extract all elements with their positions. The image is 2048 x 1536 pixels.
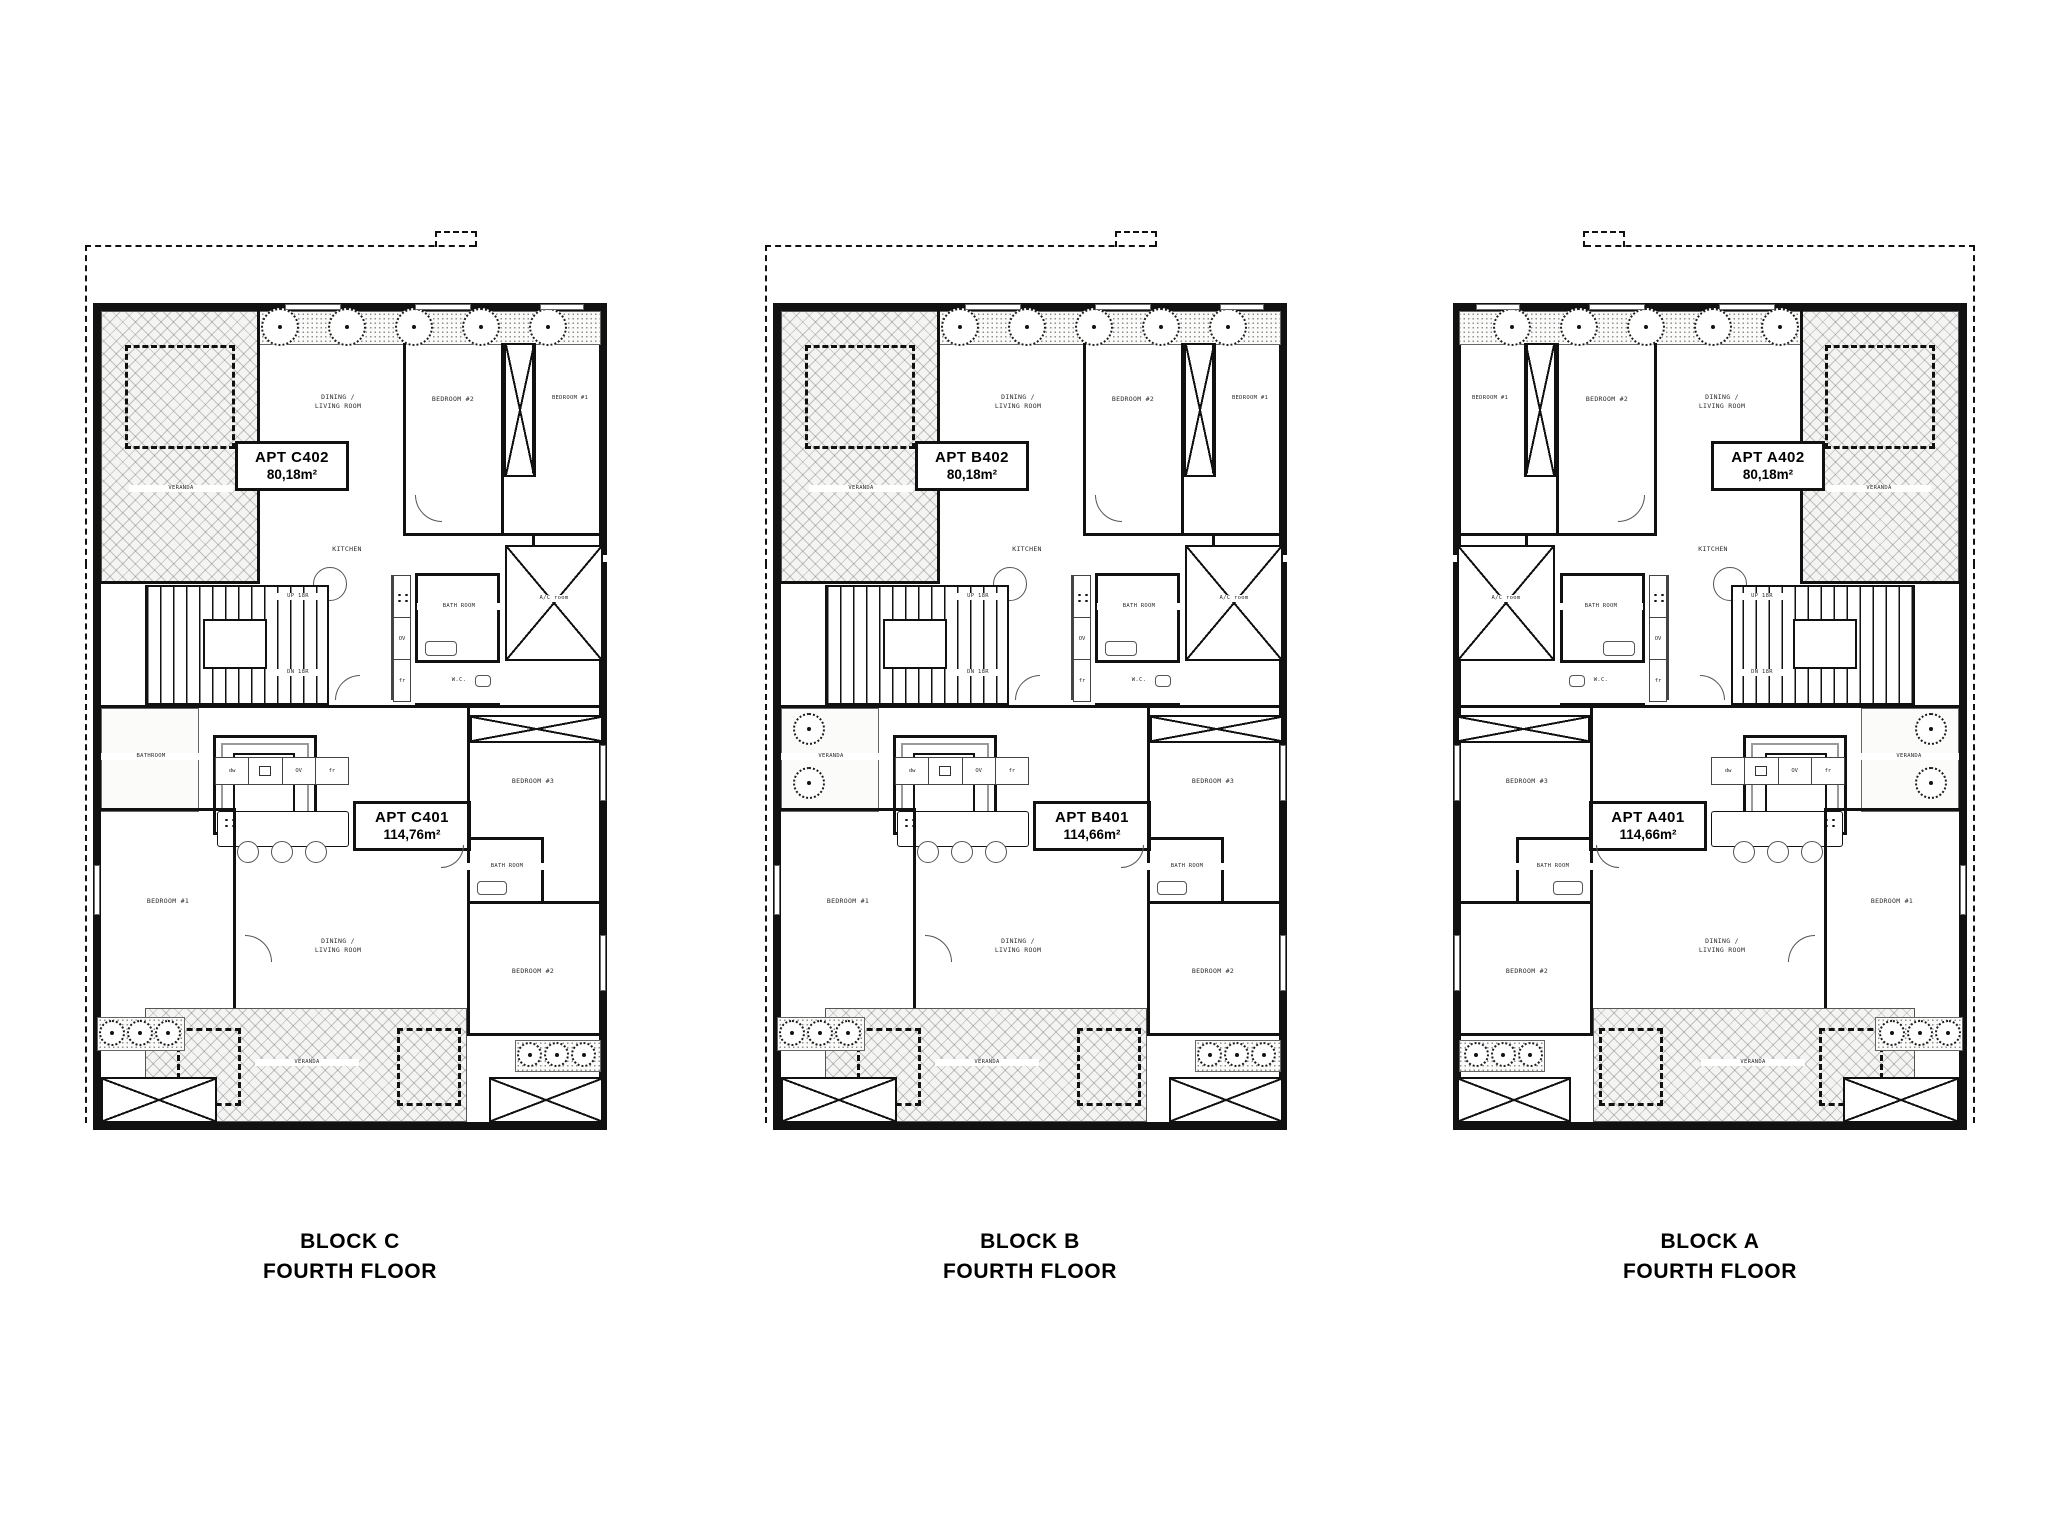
ac-shaft-label: A/C room — [1464, 595, 1548, 602]
dishwasher-cell: dw — [896, 758, 928, 784]
stair-down-label: DN 18R — [1735, 669, 1789, 676]
room-label-dining-upper-1: DINING / — [1667, 393, 1777, 401]
room-label-dining-upper-2: LIVING ROOM — [283, 402, 393, 410]
room-label-bedroom3: BEDROOM #3 — [1477, 777, 1577, 785]
wall-bedroom2-lower-top — [467, 901, 599, 904]
door-arc — [1596, 845, 1619, 868]
wall-bath-lower-top — [1147, 837, 1223, 840]
window-marker — [1280, 935, 1286, 991]
door-arc — [245, 935, 272, 962]
stair-down-label: DN 18R — [271, 669, 325, 676]
apt-lower-name: APT C401 — [362, 809, 462, 827]
wall-bedroom2-lower-bottom — [1453, 1033, 1593, 1036]
pergola-outline — [805, 345, 915, 449]
door-arc — [1015, 675, 1040, 700]
mid-left-label: VERANDA — [1859, 753, 1959, 760]
room-label-veranda-lower: VERANDA — [255, 1059, 359, 1066]
dishwasher-cell: dw — [1712, 758, 1744, 784]
door-arc — [1121, 845, 1144, 868]
window-marker — [1960, 865, 1966, 915]
wall-bath-lower-top — [1517, 837, 1593, 840]
window-marker — [1095, 304, 1151, 310]
apt-lower-area: 114,66m² — [1042, 827, 1142, 844]
door-arc — [441, 845, 464, 868]
outer-wall-bottom — [773, 1122, 1287, 1130]
room-label-bath-lower: BATH ROOM — [1147, 863, 1227, 870]
boundary-outline-tab — [435, 231, 477, 247]
wall-bedroom1-right — [1824, 808, 1827, 1010]
room-label-dining-lower-1: DINING / — [1667, 937, 1777, 945]
stair-landing — [203, 619, 267, 669]
room-label-dining-upper-1: DINING / — [283, 393, 393, 401]
room-label-dining-upper-2: LIVING ROOM — [963, 402, 1073, 410]
tree-icon — [1518, 1042, 1543, 1067]
cooktop-cell — [1074, 576, 1090, 617]
cabinet-row: dw OV fr — [215, 757, 349, 785]
stair-up-label: UP 18R — [271, 593, 325, 600]
ac-shaft — [1185, 545, 1283, 661]
tree-icon — [127, 1020, 153, 1046]
wardrobe-bedroom3 — [1150, 715, 1283, 743]
cooktop-cell — [1650, 576, 1666, 617]
tree-icon — [395, 308, 433, 346]
wall-veranda-bottom — [93, 581, 260, 584]
door-arc — [1700, 675, 1725, 700]
sink-cell — [928, 758, 961, 784]
tree-icon — [462, 308, 500, 346]
caption-floor-name: FOURTH FLOOR — [85, 1257, 615, 1287]
room-label-bath-lower: BATH ROOM — [467, 863, 547, 870]
tree-icon — [835, 1020, 861, 1046]
outer-wall-bottom — [93, 1122, 607, 1130]
kitchen-counter-cells: OV fr — [1649, 575, 1667, 702]
apt-lower-name: APT A401 — [1598, 809, 1698, 827]
dishwasher-cell: dw — [216, 758, 248, 784]
oven-cell-lower: OV — [1778, 758, 1811, 784]
stair-landing — [883, 619, 947, 669]
caption-floor-name: FOURTH FLOOR — [765, 1257, 1295, 1287]
room-label-kitchen-upper: KITCHEN — [977, 545, 1077, 553]
cooktop-icon — [396, 592, 408, 602]
window-marker — [1280, 745, 1286, 801]
block-caption: BLOCK A FOURTH FLOOR — [1445, 1227, 1975, 1288]
wall-bath-upper-top — [415, 573, 500, 576]
mid-left-label: BATHROOM — [101, 753, 201, 760]
tree-icon — [1907, 1020, 1933, 1046]
apt-upper-label-box: APT C402 80,18m² — [235, 441, 349, 491]
bathtub-icon — [425, 641, 457, 656]
wall-bath-upper-left — [1642, 573, 1645, 663]
boundary-outline-tab — [1115, 231, 1157, 247]
tree-icon — [529, 308, 567, 346]
room-label-dining-lower-2: LIVING ROOM — [1667, 946, 1777, 954]
tree-icon — [1761, 308, 1799, 346]
wall-veranda-bottom — [1800, 581, 1967, 584]
pergola-outline — [125, 345, 235, 449]
apt-upper-label-box: APT A402 80,18m² — [1711, 441, 1825, 491]
room-label-veranda-upper: VERANDA — [809, 485, 913, 492]
sink-cell — [248, 758, 281, 784]
stool-icon — [237, 841, 259, 863]
tree-icon — [807, 1020, 833, 1046]
window-marker — [285, 304, 341, 310]
pergola-outline — [1599, 1028, 1663, 1106]
apt-upper-area: 80,18m² — [1720, 467, 1816, 484]
room-label-bedroom1-upper: BEDROOM #1 — [1445, 395, 1535, 402]
wall-right-rooms — [467, 708, 470, 1035]
fridge-cell: fr — [1074, 659, 1090, 701]
stair-down-label: DN 18R — [951, 669, 1005, 676]
sink-cell — [1744, 758, 1777, 784]
cooktop-cell — [394, 576, 410, 617]
boundary-outline-left — [765, 563, 769, 1123]
tree-icon — [1464, 1042, 1489, 1067]
floorplan-drawing: VERANDA DINING / LIVING ROOM BEDROOM #2 … — [85, 245, 615, 1135]
wall-bedrooms-bottom — [1083, 533, 1287, 536]
toilet-icon — [475, 675, 491, 687]
room-label-veranda-lower: VERANDA — [935, 1059, 1039, 1066]
caption-floor-name: FOURTH FLOOR — [1445, 1257, 1975, 1287]
room-label-kitchen-upper: KITCHEN — [297, 545, 397, 553]
room-label-dining-lower-1: DINING / — [963, 937, 1073, 945]
tree-icon — [261, 308, 299, 346]
window-marker — [774, 865, 780, 915]
room-label-bedroom2-lower: BEDROOM #2 — [1477, 967, 1577, 975]
wall-bath-upper-bottom — [1560, 660, 1645, 663]
wall-bedroom1-right — [233, 808, 236, 1010]
apt-lower-area: 114,66m² — [1598, 827, 1698, 844]
stool-icon — [1801, 841, 1823, 863]
oven-cell: OV — [1650, 617, 1666, 659]
tree-icon — [779, 1020, 805, 1046]
wall-bath-upper-top — [1560, 573, 1645, 576]
wall-bath-upper-right — [497, 573, 500, 663]
tree-icon — [1491, 1042, 1516, 1067]
wardrobe-bedroom3 — [470, 715, 603, 743]
toilet-icon — [1569, 675, 1585, 687]
apt-upper-name: APT B402 — [924, 449, 1020, 467]
wall-bedroom2-lower-bottom — [1147, 1033, 1287, 1036]
window-marker — [415, 304, 471, 310]
room-label-bedroom1-lower: BEDROOM #1 — [798, 897, 898, 905]
tree-icon — [1142, 308, 1180, 346]
caption-block-name: BLOCK B — [765, 1227, 1295, 1257]
tree-icon — [1560, 308, 1598, 346]
window-marker — [1454, 745, 1460, 801]
tree-icon — [1075, 308, 1113, 346]
outer-wall-left — [93, 303, 101, 1130]
tree-icon — [1627, 308, 1665, 346]
wall-bedroom2-lower-top — [1147, 901, 1279, 904]
wall-wardrobe-right — [532, 343, 535, 473]
wall-bath-lower-top — [467, 837, 543, 840]
mid-left-label: VERANDA — [781, 753, 881, 760]
tree-icon — [571, 1042, 596, 1067]
wall-bath-upper-bottom — [415, 660, 500, 663]
fridge-cell-lower: fr — [1811, 758, 1844, 784]
wall-dining-bedroom2 — [403, 343, 406, 535]
pergola-outline — [1077, 1028, 1141, 1106]
room-label-bedroom2-upper: BEDROOM #2 — [1559, 395, 1655, 403]
wall-bath-upper-top — [1095, 573, 1180, 576]
tree-icon — [1935, 1020, 1961, 1046]
apt-lower-label-box: APT A401 114,66m² — [1589, 801, 1707, 851]
room-label-bedroom1-lower: BEDROOM #1 — [1842, 897, 1942, 905]
room-label-bedroom2-upper: BEDROOM #2 — [405, 395, 501, 403]
oven-cell: OV — [1074, 617, 1090, 659]
ac-shaft-label: A/C room — [1192, 595, 1276, 602]
wall-bedrooms-bottom — [403, 533, 607, 536]
stool-icon — [951, 841, 973, 863]
wall-bedroom1-top — [781, 808, 916, 811]
room-label-veranda-lower: VERANDA — [1701, 1059, 1805, 1066]
stool-icon — [1733, 841, 1755, 863]
room-label-bedroom1-upper: BEDROOM #1 — [1205, 395, 1295, 402]
caption-block-name: BLOCK A — [1445, 1227, 1975, 1257]
outer-wall-bottom — [1453, 1122, 1967, 1130]
boundary-outline-tab — [1583, 231, 1625, 247]
wall-bedroom2-lower-top — [1461, 901, 1593, 904]
floorplan-drawing: VERANDA DINING / LIVING ROOM BEDROOM #2 … — [1445, 245, 1975, 1135]
apt-upper-label-box: APT B402 80,18m² — [915, 441, 1029, 491]
room-label-bedroom3: BEDROOM #3 — [1163, 777, 1263, 785]
stair-landing — [1793, 619, 1857, 669]
bathtub-icon — [1603, 641, 1635, 656]
floorplan-drawing: VERANDA DINING / LIVING ROOM BEDROOM #2 … — [765, 245, 1295, 1135]
wall-wardrobe-right — [1212, 343, 1215, 473]
stool-icon — [1767, 841, 1789, 863]
room-label-dining-upper-1: DINING / — [963, 393, 1073, 401]
wall-veranda-bottom — [773, 581, 940, 584]
fridge-cell: fr — [394, 659, 410, 701]
wall-right-rooms — [1147, 708, 1150, 1035]
apt-upper-area: 80,18m² — [924, 467, 1020, 484]
apt-lower-label-box: APT B401 114,66m² — [1033, 801, 1151, 851]
room-label-kitchen-upper: KITCHEN — [1663, 545, 1763, 553]
room-label-dining-upper-2: LIVING ROOM — [1667, 402, 1777, 410]
cooktop-icon — [1076, 592, 1088, 602]
apt-lower-name: APT B401 — [1042, 809, 1142, 827]
toilet-icon — [1155, 675, 1171, 687]
floorplan-block-b: VERANDA DINING / LIVING ROOM BEDROOM #2 … — [765, 245, 1295, 1325]
room-label-bath-lower: BATH ROOM — [1513, 863, 1593, 870]
wall-bath-upper-bottom — [1095, 660, 1180, 663]
room-label-veranda-upper: VERANDA — [1827, 485, 1931, 492]
tree-icon — [1008, 308, 1046, 346]
wall-bath-upper-right — [1560, 573, 1563, 663]
door-arc — [925, 935, 952, 962]
kitchen-counter-cells: OV fr — [393, 575, 411, 702]
tree-icon — [328, 308, 366, 346]
outer-wall-left — [773, 303, 781, 1130]
wall-bath-upper-left — [1095, 573, 1098, 663]
tree-icon — [1493, 308, 1531, 346]
boundary-outline-left — [85, 563, 89, 1123]
window-marker — [965, 304, 1021, 310]
fridge-cell-lower: fr — [995, 758, 1028, 784]
wall-bedroom2-right — [1556, 343, 1559, 535]
sink-icon — [259, 766, 271, 776]
window-marker — [600, 745, 606, 801]
tree-icon — [544, 1042, 569, 1067]
fridge-cell: fr — [1650, 659, 1666, 701]
apt-upper-name: APT A402 — [1720, 449, 1816, 467]
room-label-dining-lower-1: DINING / — [283, 937, 393, 945]
room-label-bedroom1-upper: BEDROOM #1 — [525, 395, 615, 402]
cabinet-row: dw OV fr — [895, 757, 1029, 785]
window-marker — [1454, 935, 1460, 991]
pergola-outline — [1825, 345, 1935, 449]
room-label-bedroom2-lower: BEDROOM #2 — [483, 967, 583, 975]
wardrobe-upper — [1524, 343, 1556, 477]
tree-icon — [793, 713, 825, 745]
room-label-bedroom1-lower: BEDROOM #1 — [118, 897, 218, 905]
wall-bedroom1-right — [913, 808, 916, 1010]
floorplan-block-a: VERANDA DINING / LIVING ROOM BEDROOM #2 … — [1445, 245, 1975, 1325]
ac-shaft — [1457, 545, 1555, 661]
apt-upper-area: 80,18m² — [244, 467, 340, 484]
planter-box-left — [781, 1077, 897, 1123]
cooktop-icon — [1652, 592, 1664, 602]
tree-icon — [941, 308, 979, 346]
oven-cell-lower: OV — [282, 758, 315, 784]
room-label-veranda-upper: VERANDA — [129, 485, 233, 492]
wall-wardrobe-right — [1525, 343, 1528, 473]
cabinet-row: dw OV fr — [1711, 757, 1845, 785]
outer-wall-left — [1959, 303, 1967, 1130]
apt-lower-area: 114,76m² — [362, 827, 462, 844]
stool-icon — [985, 841, 1007, 863]
planter-box-right — [1457, 1077, 1571, 1123]
tree-icon — [1209, 308, 1247, 346]
apt-lower-label-box: APT C401 114,76m² — [353, 801, 471, 851]
wall-right-rooms — [1590, 708, 1593, 1035]
tree-icon — [155, 1020, 181, 1046]
oven-cell: OV — [394, 617, 410, 659]
stool-icon — [271, 841, 293, 863]
stool-icon — [305, 841, 327, 863]
pergola-outline — [397, 1028, 461, 1106]
planter-box-left — [101, 1077, 217, 1123]
island-cooktop-icon — [223, 817, 239, 829]
room-label-dining-lower-2: LIVING ROOM — [963, 946, 1073, 954]
caption-block-name: BLOCK C — [85, 1227, 615, 1257]
room-label-bath-upper: BATH ROOM — [1097, 603, 1181, 610]
room-label-bath-upper: BATH ROOM — [1559, 603, 1643, 610]
stair-up-label: UP 18R — [1735, 593, 1789, 600]
room-label-bath-upper: BATH ROOM — [417, 603, 501, 610]
bathtub-icon — [477, 881, 507, 895]
wall-bedroom1-top — [101, 808, 236, 811]
door-arc — [1788, 935, 1815, 962]
window-marker — [1589, 304, 1645, 310]
window-marker — [1476, 304, 1520, 310]
sink-icon — [939, 766, 951, 776]
kitchen-counter-cells: OV fr — [1073, 575, 1091, 702]
window-marker — [600, 935, 606, 991]
stool-icon — [917, 841, 939, 863]
sink-icon — [1755, 766, 1767, 776]
block-caption: BLOCK B FOURTH FLOOR — [765, 1227, 1295, 1288]
tree-icon — [1251, 1042, 1276, 1067]
block-caption: BLOCK C FOURTH FLOOR — [85, 1227, 615, 1288]
wall-bath-upper-left — [415, 573, 418, 663]
wall-dining-bedroom2 — [1083, 343, 1086, 535]
planter-box-right — [1169, 1077, 1283, 1123]
tree-icon — [1879, 1020, 1905, 1046]
room-label-bedroom3: BEDROOM #3 — [483, 777, 583, 785]
tree-icon — [793, 767, 825, 799]
tree-icon — [517, 1042, 542, 1067]
wardrobe-bedroom3 — [1457, 715, 1590, 743]
window-marker — [1220, 304, 1264, 310]
tree-icon — [1694, 308, 1732, 346]
window-marker — [94, 865, 100, 915]
oven-cell-lower: OV — [962, 758, 995, 784]
window-marker — [1719, 304, 1775, 310]
wall-bedroom1-top — [1824, 808, 1959, 811]
room-label-dining-lower-2: LIVING ROOM — [283, 946, 393, 954]
tree-icon — [1915, 767, 1947, 799]
tree-icon — [1197, 1042, 1222, 1067]
ac-shaft — [505, 545, 603, 661]
wall-bedrooms-bottom — [1453, 533, 1657, 536]
planter-box-left — [1843, 1077, 1959, 1123]
ac-shaft-label: A/C room — [512, 595, 596, 602]
room-label-bedroom2-lower: BEDROOM #2 — [1163, 967, 1263, 975]
apt-upper-name: APT C402 — [244, 449, 340, 467]
island-cooktop-icon — [903, 817, 919, 829]
fridge-cell-lower: fr — [315, 758, 348, 784]
bathtub-icon — [1553, 881, 1583, 895]
door-arc — [335, 675, 360, 700]
stair-up-label: UP 18R — [951, 593, 1005, 600]
tree-icon — [1224, 1042, 1249, 1067]
floorplan-block-c: VERANDA DINING / LIVING ROOM BEDROOM #2 … — [85, 245, 615, 1325]
window-marker — [540, 304, 584, 310]
kitchen-counter — [1667, 575, 1669, 700]
bathtub-icon — [1157, 881, 1187, 895]
wall-bath-upper-right — [1177, 573, 1180, 663]
wall-bedroom2-lower-bottom — [467, 1033, 607, 1036]
tree-icon — [1915, 713, 1947, 745]
tree-icon — [99, 1020, 125, 1046]
boundary-outline-left — [1971, 563, 1975, 1123]
planter-box-right — [489, 1077, 603, 1123]
bathtub-icon — [1105, 641, 1137, 656]
floorplan-sheet: VERANDA DINING / LIVING ROOM BEDROOM #2 … — [0, 0, 2048, 1536]
room-label-bedroom2-upper: BEDROOM #2 — [1085, 395, 1181, 403]
wall-dining-bedroom2 — [1654, 343, 1657, 535]
